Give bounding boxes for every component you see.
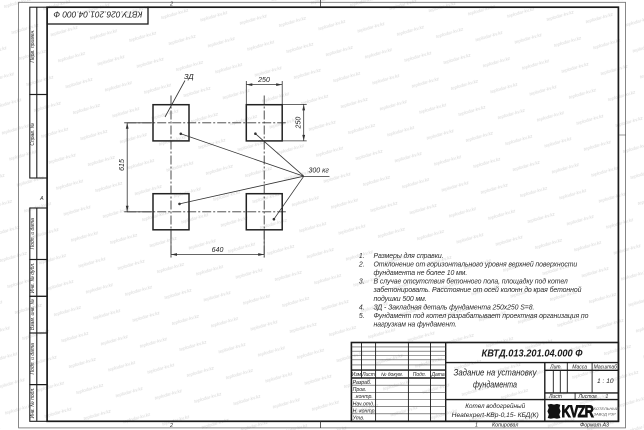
svg-text:КВТД.013.201.04.000 Ф: КВТД.013.201.04.000 Ф (482, 348, 584, 360)
svg-text:Утв.: Утв. (353, 416, 365, 422)
svg-text:1: 1 (606, 394, 609, 400)
svg-text:1 : 10: 1 : 10 (597, 378, 614, 385)
svg-text:Перв. примен.: Перв. примен. (30, 29, 36, 62)
svg-text:2: 2 (169, 423, 173, 429)
svg-text:2.: 2. (358, 261, 365, 268)
svg-text:4.: 4. (359, 304, 365, 311)
svg-text:Н. контр.: Н. контр. (353, 408, 376, 414)
svg-text:ЗАВОД РЗР: ЗАВОД РЗР (594, 411, 617, 416)
svg-text:забетонировать. Расстояние от: забетонировать. Расстояние от осей колон… (373, 286, 582, 294)
svg-text:1.: 1. (359, 253, 365, 260)
svg-text:615: 615 (119, 159, 126, 171)
svg-text:Лист: Лист (361, 372, 375, 378)
svg-text:подушки 500 мм.: подушки 500 мм. (374, 295, 427, 303)
svg-text:А: А (39, 196, 44, 202)
svg-text:Лит.: Лит. (549, 364, 562, 370)
svg-text:В случае отсутствия бетонного: В случае отсутствия бетонного пола, площ… (374, 278, 568, 286)
svg-text:Копировал: Копировал (492, 423, 518, 429)
svg-text:КОТЕЛЬНЫЙ: КОТЕЛЬНЫЙ (594, 406, 619, 411)
svg-text:Масштаб: Масштаб (594, 364, 618, 370)
svg-text:Нач.отд.: Нач.отд. (353, 401, 375, 407)
svg-text:ЗД: ЗД (184, 72, 194, 81)
svg-text:Подп.: Подп. (413, 372, 426, 378)
svg-text:Инв. № подл.: Инв. № подл. (30, 387, 36, 418)
svg-text:Взам. инв. №: Взам. инв. № (30, 299, 36, 331)
svg-text:Задание на установку: Задание на установку (454, 368, 538, 378)
svg-text:3.: 3. (359, 279, 365, 286)
svg-text:Котел водогрейный: Котел водогрейный (465, 402, 525, 410)
svg-text:Heatexpert-КВр-0,15- КБД(К): Heatexpert-КВр-0,15- КБД(К) (452, 412, 539, 419)
svg-text:KVZR: KVZR (561, 402, 594, 421)
svg-text:Инв. № дубл.: Инв. № дубл. (30, 263, 36, 294)
svg-text:нагрузкам на фундамент.: нагрузкам на фундамент. (374, 321, 457, 329)
svg-text:Изм: Изм (352, 372, 362, 378)
svg-text:Масса: Масса (572, 364, 587, 370)
svg-text:250: 250 (257, 77, 270, 84)
svg-text:250: 250 (295, 117, 302, 130)
svg-text:№ докум.: № докум. (381, 372, 403, 378)
svg-text:300 кг: 300 кг (309, 168, 330, 175)
svg-text:фундамента: фундамента (473, 380, 517, 390)
svg-text:640: 640 (212, 247, 224, 254)
svg-text:Отклонение от горизонтального: Отклонение от горизонтального уровня вер… (374, 260, 578, 268)
svg-text:фундамента не более 10 мм.: фундамента не более 10 мм. (374, 269, 468, 277)
svg-text:5.: 5. (359, 313, 365, 320)
svg-text:Дата: Дата (430, 372, 444, 378)
svg-text:1: 1 (475, 423, 478, 429)
svg-text:Справ. №: Справ. № (30, 122, 36, 145)
svg-text:Подп. и дата: Подп. и дата (30, 343, 36, 375)
svg-text:Разраб.: Разраб. (353, 380, 372, 386)
svg-text:Листов: Листов (578, 394, 598, 400)
svg-text:Пров.: Пров. (353, 387, 367, 393)
svg-text:Формат А3: Формат А3 (580, 423, 609, 429)
svg-text:КВТУ.026.201.04.000 Ф: КВТУ.026.201.04.000 Ф (53, 9, 143, 18)
svg-text:Подп. и дата: Подп. и дата (30, 218, 36, 250)
svg-text:Лист: Лист (548, 394, 562, 400)
svg-text:.контр.: .контр. (355, 394, 373, 400)
svg-text:ЗД - Закладная деталь фундамен: ЗД - Закладная деталь фундамента 250х250… (374, 303, 535, 311)
svg-text:Размеры для справки.: Размеры для справки. (374, 252, 444, 260)
svg-text:2: 2 (169, 2, 173, 8)
svg-text:Фундамент под котел разрабатыв: Фундамент под котел разрабатывает проект… (374, 312, 589, 320)
